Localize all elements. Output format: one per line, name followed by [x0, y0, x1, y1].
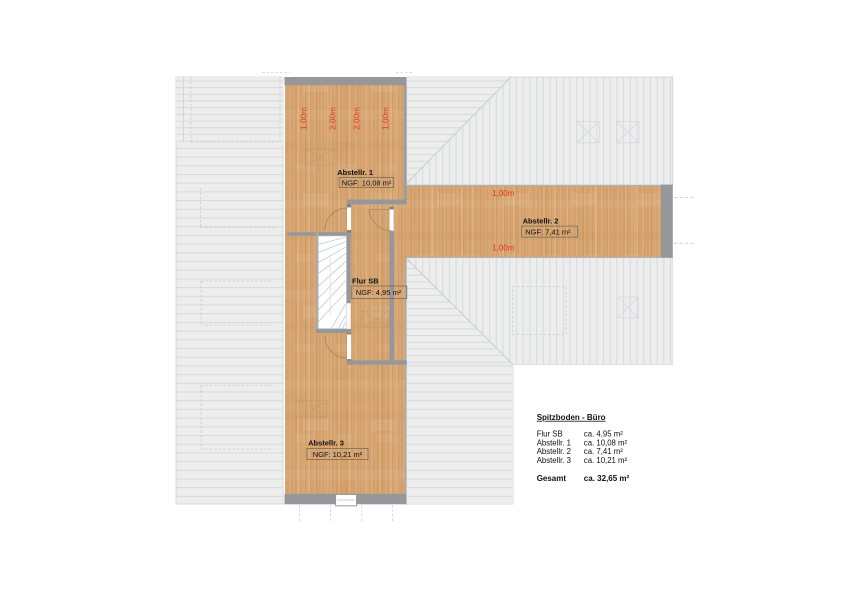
svg-text:Spitzboden - Büro: Spitzboden - Büro — [537, 413, 606, 422]
svg-text:Abstellr. 3: Abstellr. 3 — [537, 456, 571, 465]
svg-text:ca. 10,08 m²: ca. 10,08 m² — [584, 438, 628, 447]
svg-text:Gesamt: Gesamt — [537, 474, 567, 483]
svg-text:ca. 7,41 m²: ca. 7,41 m² — [584, 447, 623, 456]
svg-text:NGF: 4,95 m²: NGF: 4,95 m² — [356, 288, 402, 297]
svg-text:2,00m: 2,00m — [329, 107, 338, 130]
svg-text:ca. 32,65 m²: ca. 32,65 m² — [584, 474, 630, 483]
svg-text:Abstellr. 1: Abstellr. 1 — [337, 168, 373, 177]
svg-text:Abstellr. 1: Abstellr. 1 — [537, 438, 571, 447]
svg-text:Abstellr. 2: Abstellr. 2 — [523, 217, 559, 226]
svg-text:Abstellr. 2: Abstellr. 2 — [537, 447, 571, 456]
svg-text:2,00m: 2,00m — [353, 107, 362, 130]
svg-text:Flur SB: Flur SB — [537, 430, 563, 439]
svg-text:ca. 4,95 m²: ca. 4,95 m² — [584, 430, 623, 439]
svg-text:1,00m: 1,00m — [492, 244, 515, 253]
svg-text:1,00m: 1,00m — [382, 107, 391, 130]
svg-text:ca. 10,21 m²: ca. 10,21 m² — [584, 456, 628, 465]
svg-text:1,00m: 1,00m — [492, 189, 515, 198]
svg-text:NGF: 10,21 m²: NGF: 10,21 m² — [313, 450, 363, 459]
svg-text:1,00m: 1,00m — [300, 107, 309, 130]
svg-text:NGF: 10,08 m²: NGF: 10,08 m² — [342, 178, 392, 187]
svg-text:Abstellr. 3: Abstellr. 3 — [308, 439, 344, 448]
svg-text:Flur SB: Flur SB — [352, 277, 379, 286]
svg-text:NGF: 7,41 m²: NGF: 7,41 m² — [525, 228, 571, 237]
